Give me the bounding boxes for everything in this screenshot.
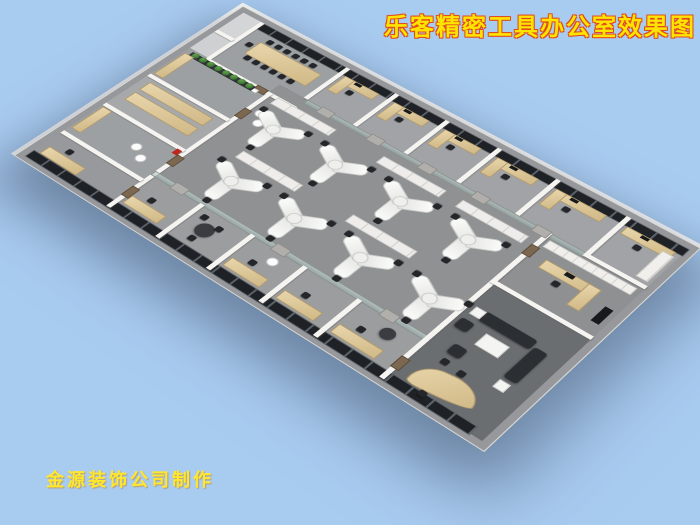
credit-text: 金源装饰公司制作 — [46, 466, 214, 492]
office-rendering-image: 乐客精密工具办公室效果图 金源装饰公司制作 — [0, 0, 700, 525]
floorplan — [14, 6, 700, 452]
isometric-scene — [0, 0, 700, 525]
page-title: 乐客精密工具办公室效果图 — [384, 7, 696, 42]
